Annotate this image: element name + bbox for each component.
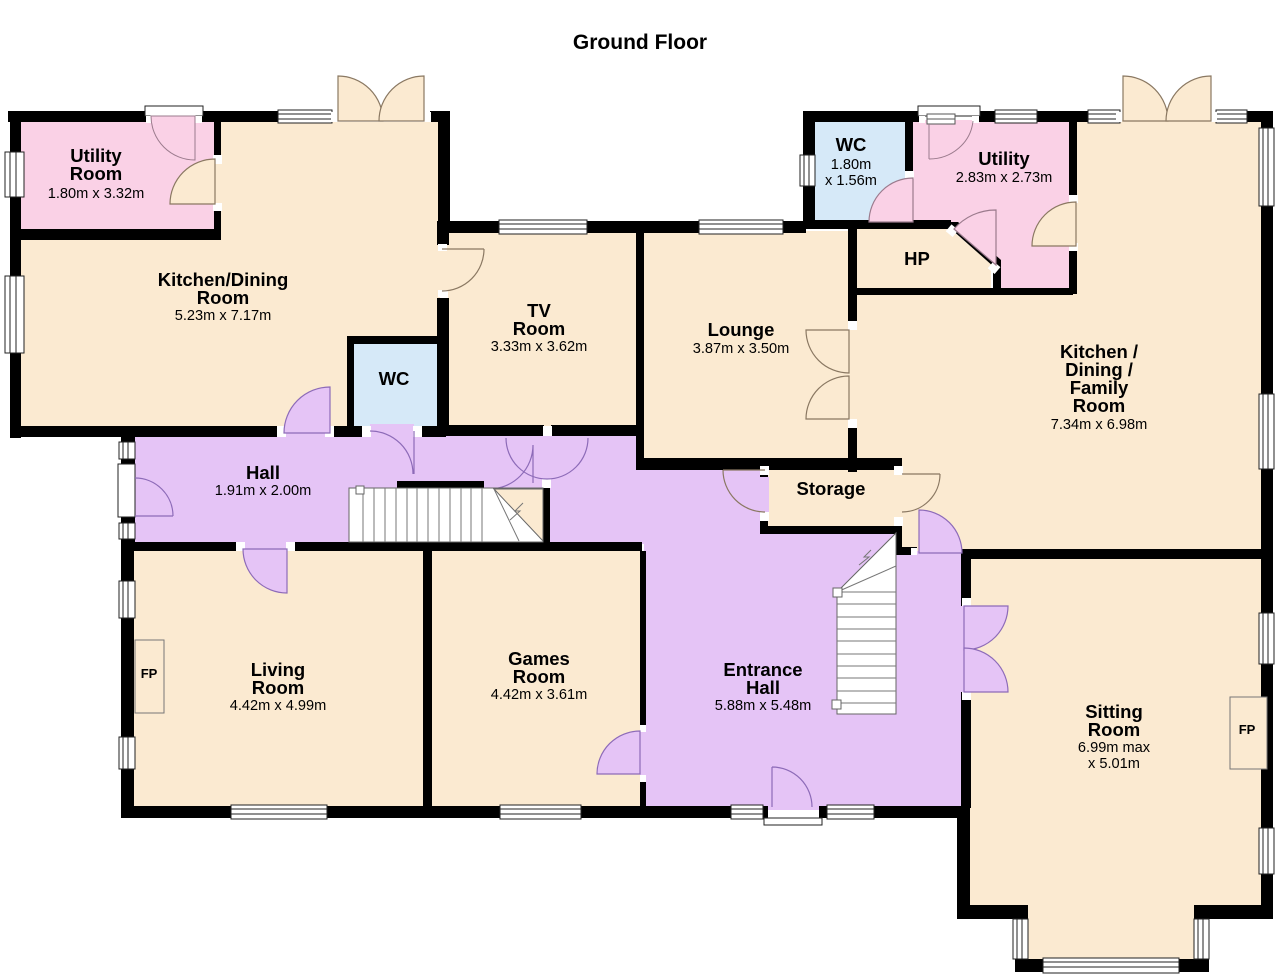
svg-text:Room: Room <box>1088 719 1140 740</box>
svg-text:WC: WC <box>379 368 410 389</box>
svg-text:Room: Room <box>197 287 249 308</box>
svg-text:Hall: Hall <box>246 462 280 483</box>
svg-text:1.80m x 3.32m: 1.80m x 3.32m <box>48 186 145 202</box>
svg-text:3.87m x 3.50m: 3.87m x 3.50m <box>693 341 790 357</box>
svg-text:5.88m x 5.48m: 5.88m x 5.48m <box>715 698 812 714</box>
svg-text:Room: Room <box>1073 395 1125 416</box>
svg-text:HP: HP <box>904 248 930 269</box>
svg-text:Lounge: Lounge <box>708 319 775 340</box>
svg-text:4.42m x 4.99m: 4.42m x 4.99m <box>230 698 327 714</box>
svg-text:WC: WC <box>836 134 867 155</box>
svg-text:x 1.56m: x 1.56m <box>825 173 877 189</box>
svg-text:Room: Room <box>70 163 122 184</box>
svg-text:Room: Room <box>513 666 565 687</box>
svg-text:x 5.01m: x 5.01m <box>1088 756 1140 772</box>
svg-text:FP: FP <box>1239 722 1256 737</box>
svg-text:3.33m x 3.62m: 3.33m x 3.62m <box>491 339 588 355</box>
svg-text:7.34m x 6.98m: 7.34m x 6.98m <box>1051 417 1148 433</box>
svg-text:Ground Floor: Ground Floor <box>573 31 707 54</box>
svg-text:5.23m x 7.17m: 5.23m x 7.17m <box>175 308 272 324</box>
svg-text:FP: FP <box>141 666 158 681</box>
svg-text:2.83m x 2.73m: 2.83m x 2.73m <box>956 170 1053 186</box>
svg-text:Storage: Storage <box>797 478 866 499</box>
svg-text:Room: Room <box>252 677 304 698</box>
svg-text:Room: Room <box>513 318 565 339</box>
svg-text:6.99m max: 6.99m max <box>1078 740 1151 756</box>
svg-text:1.91m x 2.00m: 1.91m x 2.00m <box>215 483 312 499</box>
svg-text:4.42m x 3.61m: 4.42m x 3.61m <box>491 687 588 703</box>
svg-text:1.80m: 1.80m <box>831 157 872 173</box>
svg-text:Utility: Utility <box>978 148 1030 169</box>
svg-text:Hall: Hall <box>746 677 780 698</box>
